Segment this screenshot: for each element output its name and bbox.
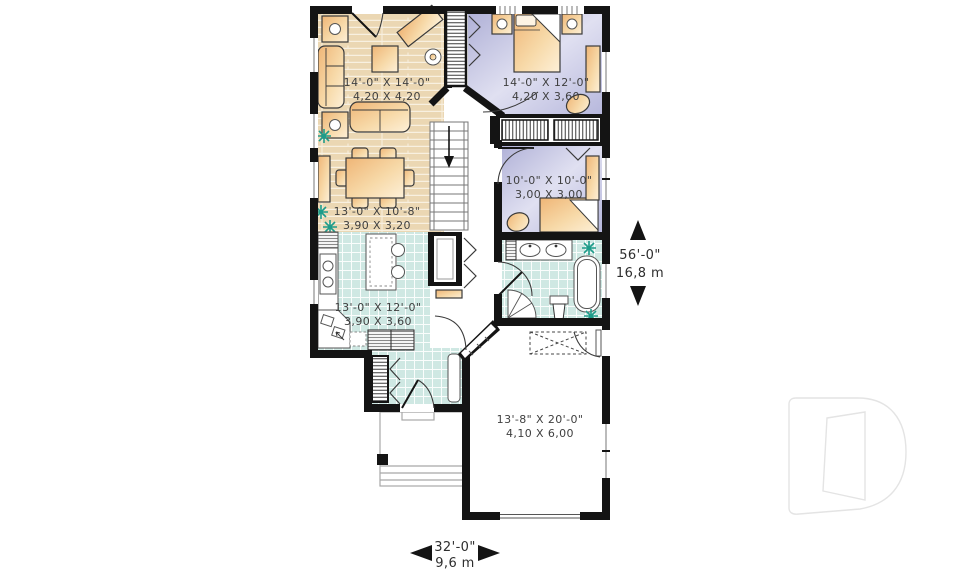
arrow-left-icon xyxy=(410,545,432,561)
dining-table xyxy=(346,158,404,198)
plant-icon xyxy=(582,241,596,255)
hall-arch-arc xyxy=(435,316,466,350)
pillow xyxy=(516,15,536,26)
bedroom-2-metric-label: 3,00 X 3,00 xyxy=(515,188,583,201)
stool xyxy=(392,244,405,257)
dishwasher xyxy=(350,332,366,346)
sofa xyxy=(318,46,344,108)
hall-closet xyxy=(446,10,466,86)
toilet-tank xyxy=(550,296,568,304)
garage-metric-label: 4,10 X 6,00 xyxy=(506,427,574,440)
width-dimension-marker: 32'-0" 9,6 m xyxy=(410,540,500,569)
table-lamp-icon xyxy=(330,120,341,131)
foyer-closet xyxy=(372,356,388,402)
stove xyxy=(320,254,336,294)
floor-plan-page: 14'-0" X 14'-0" 4,20 X 4,20 14'-0" X 12'… xyxy=(0,0,960,569)
kitchen-island xyxy=(366,234,396,290)
stove-burner-icon xyxy=(323,261,333,271)
watermark-d-logo-icon xyxy=(789,398,906,514)
width-metric-label: 9,6 m xyxy=(435,556,474,569)
dining-room-metric-label: 3,90 X 3,20 xyxy=(343,219,411,232)
depth-metric-label: 16,8 m xyxy=(616,266,664,281)
table-lamp-icon xyxy=(330,24,341,35)
kitchen-metric-label: 3,90 X 3,60 xyxy=(344,315,412,328)
living-room-metric-label: 4,20 X 4,20 xyxy=(353,90,421,103)
kitchen-dimensions-label: 13'-0" X 12'-0" xyxy=(335,301,422,314)
arrow-right-icon xyxy=(478,545,500,561)
arrow-down-icon xyxy=(630,286,646,306)
front-door-opening xyxy=(400,404,434,412)
depth-dimension-marker: 56'-0" 16,8 m xyxy=(616,220,664,306)
hearth-pad xyxy=(436,290,462,298)
living-room-dimensions-label: 14'-0" X 14'-0" xyxy=(344,76,431,89)
garage-entry-opening xyxy=(602,330,610,356)
table-lamp-icon xyxy=(567,19,577,29)
bench xyxy=(448,354,460,402)
fireplace-chevrons xyxy=(464,238,476,288)
fireplace xyxy=(428,232,476,298)
depth-imperial-label: 56'-0" xyxy=(619,248,660,263)
dining-room-dimensions-label: 13'-0" X 10'-8" xyxy=(334,205,421,218)
front-porch xyxy=(377,412,468,486)
garage-dimensions-label: 13'-8" X 20'-0" xyxy=(497,413,584,426)
master-bedroom-dimensions-label: 14'-0" X 12'-0" xyxy=(503,76,590,89)
width-imperial-label: 32'-0" xyxy=(434,540,475,555)
garage-overhead-door xyxy=(500,512,580,520)
stove-burner-icon xyxy=(323,277,333,287)
plant-icon xyxy=(317,129,331,143)
table-lamp-icon xyxy=(497,19,507,29)
floor-plan-canvas: 14'-0" X 14'-0" 4,20 X 4,20 14'-0" X 12'… xyxy=(0,0,960,569)
buffet xyxy=(318,156,330,202)
porch-post xyxy=(377,454,388,465)
master-bedroom-metric-label: 4,20 X 3,60 xyxy=(512,90,580,103)
front-step xyxy=(402,412,434,420)
coffee-table xyxy=(372,46,398,72)
arrow-up-icon xyxy=(630,220,646,240)
patio-door-opening xyxy=(352,6,383,14)
toilet xyxy=(553,304,565,320)
door-leaf xyxy=(596,330,601,356)
staircase xyxy=(430,122,468,230)
bedroom-2-dimensions-label: 10'-0" X 10'-0" xyxy=(506,174,593,187)
stool xyxy=(392,266,405,279)
